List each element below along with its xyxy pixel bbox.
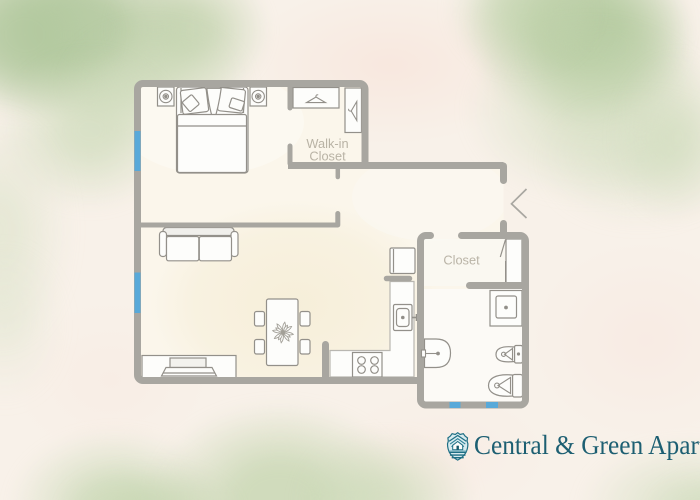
svg-text:Closet: Closet	[309, 148, 346, 163]
svg-text:Central & Green Apart: Central & Green Apart	[474, 430, 700, 460]
svg-text:Closet: Closet	[443, 253, 480, 268]
